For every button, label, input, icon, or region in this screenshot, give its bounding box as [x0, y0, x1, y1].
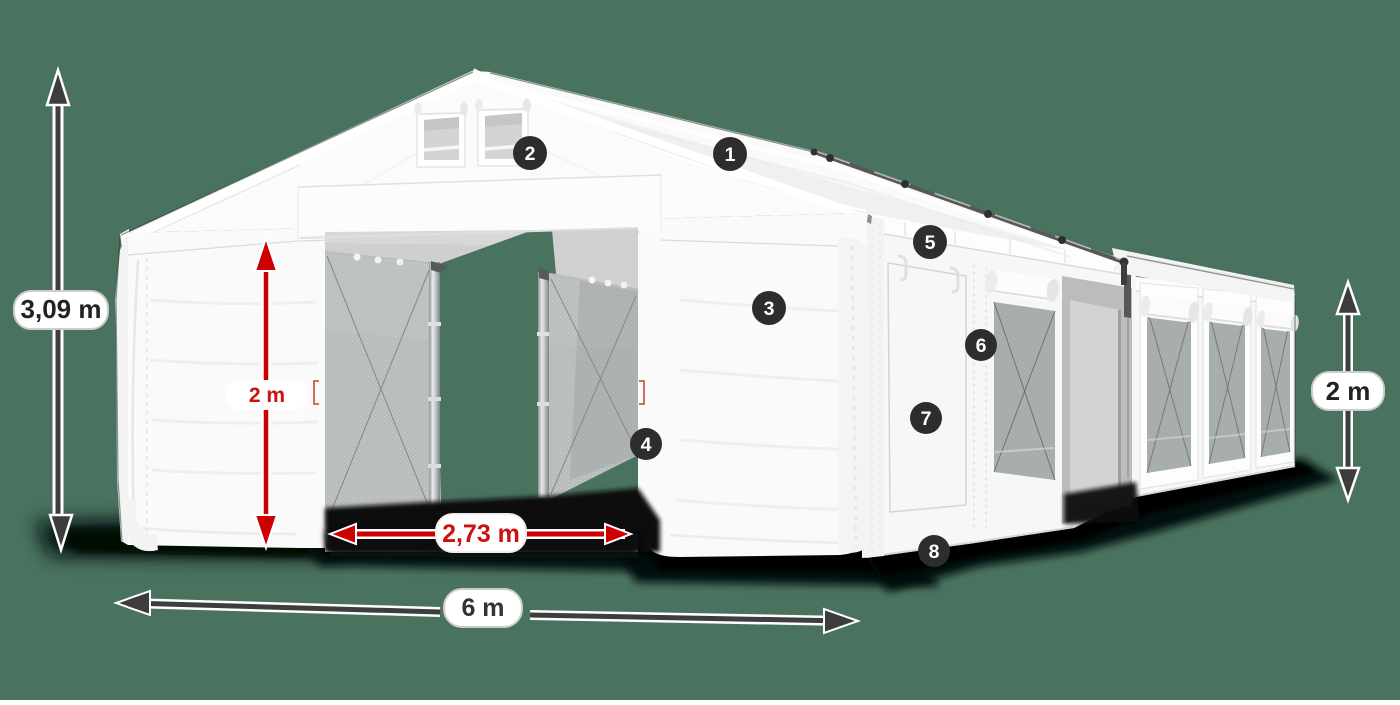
- svg-text:7: 7: [921, 408, 932, 430]
- svg-text:2: 2: [525, 143, 536, 165]
- svg-text:2 m: 2 m: [1326, 376, 1371, 406]
- svg-text:3,09 m: 3,09 m: [21, 294, 102, 324]
- svg-text:8: 8: [929, 541, 940, 563]
- svg-text:2,73 m: 2,73 m: [442, 520, 520, 548]
- svg-text:3: 3: [764, 298, 775, 320]
- svg-text:1: 1: [725, 144, 736, 166]
- svg-text:6 m: 6 m: [461, 594, 504, 622]
- svg-text:4: 4: [641, 434, 652, 456]
- svg-text:5: 5: [925, 232, 936, 254]
- svg-text:6: 6: [976, 335, 987, 357]
- svg-text:2 m: 2 m: [249, 384, 285, 407]
